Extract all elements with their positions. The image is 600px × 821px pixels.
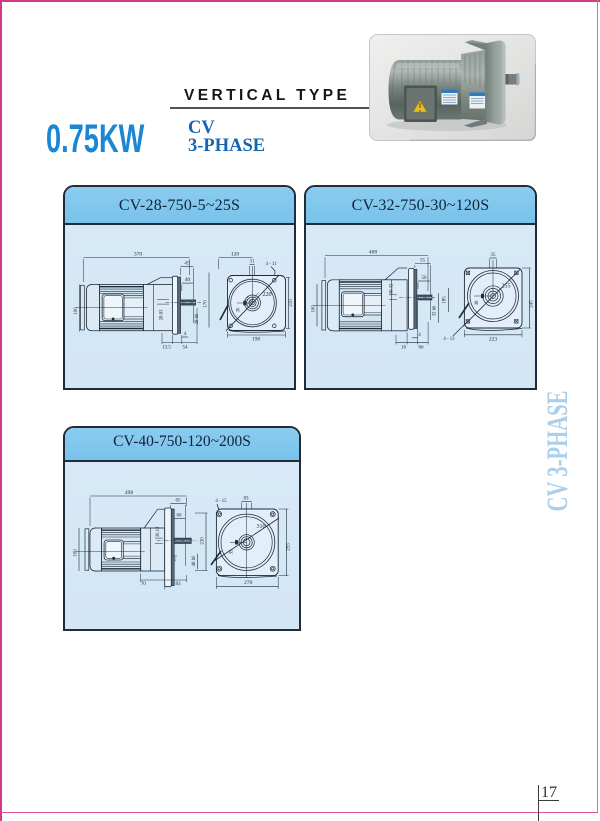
svg-text:4: 4: [184, 332, 187, 337]
svg-text:4 - 15: 4 - 15: [215, 499, 227, 504]
svg-text:293: 293: [287, 543, 292, 551]
svg-text:35: 35: [230, 549, 235, 554]
svg-text:4 - 11: 4 - 11: [265, 262, 277, 267]
svg-text:65: 65: [176, 499, 182, 504]
svg-text:32 h6: 32 h6: [432, 305, 437, 316]
svg-text:245: 245: [529, 300, 534, 308]
svg-text:210: 210: [289, 299, 294, 307]
svg-text:270: 270: [244, 580, 253, 586]
svg-text:45: 45: [184, 260, 190, 266]
svg-text:83: 83: [244, 496, 250, 501]
svg-text:255: 255: [502, 284, 511, 290]
svg-text:70: 70: [141, 582, 147, 587]
svg-text:100: 100: [74, 549, 79, 557]
svg-text:185: 185: [443, 296, 448, 304]
svg-text:55: 55: [420, 259, 426, 264]
svg-text:310: 310: [257, 524, 266, 530]
svg-text:50: 50: [422, 276, 428, 281]
svg-text:30.32: 30.32: [389, 283, 394, 294]
svg-text:40 h6: 40 h6: [192, 555, 197, 566]
svg-text:230: 230: [201, 537, 206, 545]
svg-text:100: 100: [74, 307, 79, 315]
svg-text:35: 35: [491, 253, 497, 258]
svg-text:28 h6: 28 h6: [195, 313, 200, 324]
svg-text:13.5: 13.5: [162, 346, 171, 351]
svg-text:20.83: 20.83: [160, 309, 165, 320]
svg-text:66: 66: [419, 346, 425, 351]
svg-text:30: 30: [475, 300, 480, 305]
svg-text:408: 408: [369, 250, 378, 256]
svg-text:16: 16: [401, 346, 407, 351]
svg-text:60: 60: [177, 514, 183, 519]
svg-text:4 - 13: 4 - 13: [443, 337, 455, 342]
svg-text:40: 40: [185, 277, 191, 283]
svg-text:370: 370: [134, 252, 143, 258]
svg-text:4: 4: [418, 333, 421, 338]
svg-text:54: 54: [183, 346, 189, 351]
svg-text:36.12: 36.12: [156, 526, 161, 537]
svg-text:220: 220: [263, 292, 272, 298]
svg-text:120: 120: [231, 252, 240, 258]
svg-text:83: 83: [176, 582, 182, 587]
svg-text:170: 170: [204, 300, 209, 308]
svg-text:31: 31: [250, 260, 255, 265]
svg-text:36: 36: [237, 307, 242, 312]
svg-text:198: 198: [252, 337, 261, 343]
svg-text:223: 223: [489, 336, 498, 342]
svg-text:100: 100: [312, 305, 317, 313]
svg-text:498: 498: [125, 490, 134, 496]
svg-text:5: 5: [174, 558, 177, 563]
